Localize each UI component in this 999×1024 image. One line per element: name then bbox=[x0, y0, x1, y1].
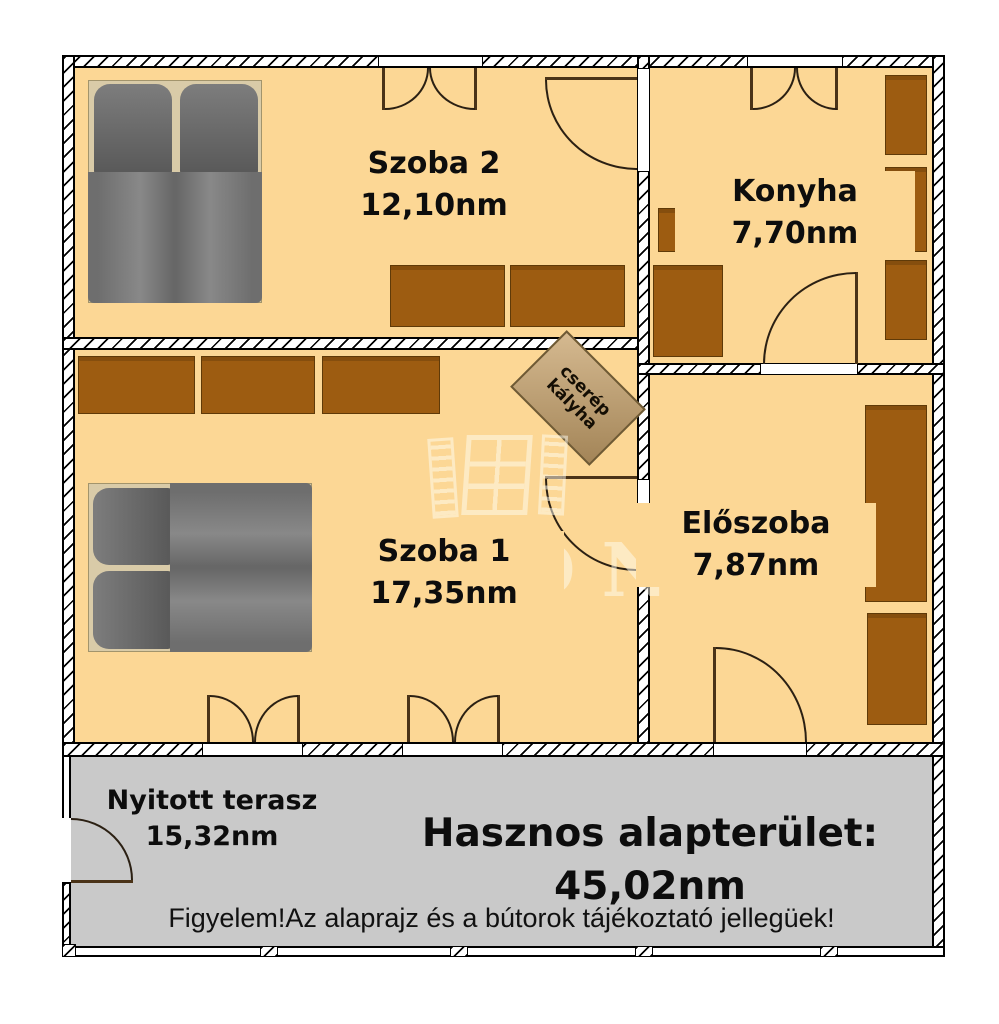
cabinet bbox=[322, 356, 440, 414]
cabinet bbox=[201, 356, 315, 414]
window-szoba2-opening bbox=[378, 55, 483, 68]
bed-szoba1-duvet bbox=[170, 483, 312, 652]
room-area: 7,87nm bbox=[636, 545, 876, 587]
bed-szoba2-duvet bbox=[88, 172, 262, 303]
floorplan: cserép kályha GDN Szoba 2 12,10nm Konyha… bbox=[62, 55, 945, 957]
kitchen-cabinet bbox=[653, 265, 723, 357]
room-name: Konyha bbox=[675, 171, 915, 213]
terrace-door-leaf bbox=[71, 880, 133, 883]
cabinet bbox=[78, 356, 195, 414]
frenchdoor1-opening bbox=[202, 742, 303, 757]
room-area: 7,70nm bbox=[675, 213, 915, 255]
room-name: Előszoba bbox=[636, 503, 876, 545]
wall-right bbox=[932, 55, 945, 957]
room-area: 12,10nm bbox=[314, 185, 554, 227]
label-szoba1: Szoba 1 17,35nm bbox=[324, 531, 564, 615]
window-konyha-opening bbox=[747, 55, 843, 68]
kitchen-cabinet bbox=[885, 75, 927, 155]
disclaimer-text: Figyelem!Az alaprajz és a bútorok tájéko… bbox=[71, 903, 932, 934]
railing-post bbox=[635, 946, 653, 957]
bed-szoba1-pillow bbox=[93, 571, 173, 649]
railing-corner-post bbox=[62, 944, 76, 957]
wall-left bbox=[62, 55, 75, 757]
bed-szoba2-pillow bbox=[180, 84, 258, 176]
wardrobe bbox=[867, 613, 927, 725]
wall-terrace-left-upper bbox=[62, 757, 71, 818]
wall-terrace-top bbox=[62, 742, 945, 757]
room-area: 15,32nm bbox=[87, 819, 337, 855]
label-total-area: Hasznos alapterület: 45,02nm bbox=[395, 807, 905, 913]
label-konyha: Konyha 7,70nm bbox=[675, 171, 915, 255]
bed-szoba1-pillow bbox=[93, 488, 173, 565]
terrace-railing bbox=[62, 946, 945, 957]
room-name: Szoba 1 bbox=[324, 531, 564, 573]
kitchen-cabinet bbox=[885, 260, 927, 340]
floorplan-image: cserép kályha GDN Szoba 2 12,10nm Konyha… bbox=[0, 0, 999, 1024]
railing-post bbox=[450, 946, 468, 957]
frenchdoor2-opening bbox=[402, 742, 503, 757]
railing-post bbox=[260, 946, 278, 957]
room-area: 17,35nm bbox=[324, 573, 564, 615]
cabinet bbox=[510, 265, 625, 327]
bed-szoba2-pillow bbox=[94, 84, 172, 176]
entry-door-opening bbox=[713, 742, 807, 757]
cabinet bbox=[390, 265, 505, 327]
total-area-label: Hasznos alapterület: bbox=[395, 807, 905, 860]
label-szoba2: Szoba 2 12,10nm bbox=[314, 143, 554, 227]
door-konyha-eloszoba-opening bbox=[760, 363, 858, 375]
label-eloszoba: Előszoba 7,87nm bbox=[636, 503, 876, 587]
room-name: Nyitott terasz bbox=[87, 783, 337, 819]
room-name: Szoba 2 bbox=[314, 143, 554, 185]
door-szoba2-konyha-opening bbox=[637, 68, 650, 172]
railing-post bbox=[820, 946, 838, 957]
wall-terrace-left-lower bbox=[62, 882, 71, 946]
label-terasz: Nyitott terasz 15,32nm bbox=[87, 783, 337, 855]
